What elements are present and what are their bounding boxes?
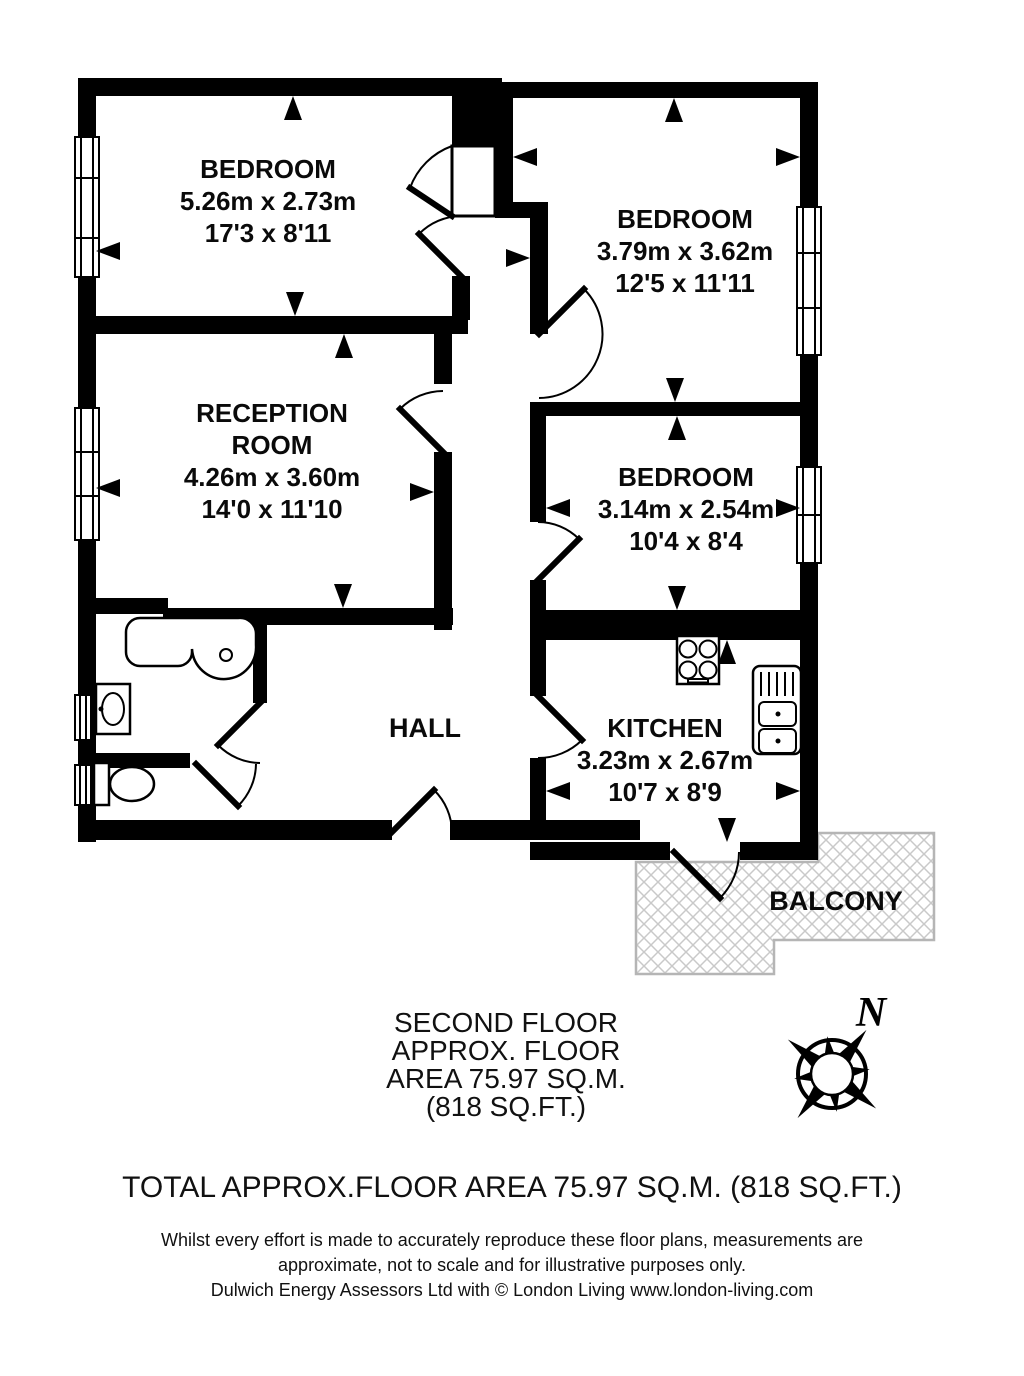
door-closet (410, 146, 452, 216)
door-bed2 (539, 289, 602, 398)
window-wc-left (75, 765, 91, 805)
bed1-imperial: 17'3 x 8'11 (205, 218, 332, 248)
reception-metric: 4.26m x 3.60m (184, 462, 360, 492)
door-wc (196, 764, 256, 806)
reception-imperial: 14'0 x 11'10 (201, 494, 342, 524)
door-reception (400, 391, 443, 452)
compass-center (811, 1053, 853, 1095)
window-bathroom-left (75, 695, 91, 740)
caption-line1: SECOND FLOOR (394, 1007, 618, 1038)
disclaimer-line3: Dulwich Energy Assessors Ltd with © Lond… (211, 1280, 814, 1300)
reception-name2: ROOM (232, 430, 313, 460)
bed2-metric: 3.79m x 3.62m (597, 236, 773, 266)
bed3-name: BEDROOM (618, 462, 754, 492)
caption-line2: APPROX. FLOOR (392, 1035, 621, 1066)
caption-line3: AREA 75.97 SQ.M. (386, 1063, 626, 1094)
kitchen-imperial: 10'7 x 8'9 (608, 777, 722, 807)
bed3-imperial: 10'4 x 8'4 (629, 526, 743, 556)
bed1-metric: 5.26m x 2.73m (180, 186, 356, 216)
disclaimer-line1: Whilst every effort is made to accuratel… (161, 1230, 863, 1250)
floor-caption: SECOND FLOOR APPROX. FLOOR AREA 75.97 SQ… (386, 1007, 626, 1122)
door-entrance (392, 790, 452, 832)
disclaimer: Whilst every effort is made to accuratel… (161, 1230, 863, 1300)
window-bed3-right (797, 467, 821, 563)
window-bed2-right (797, 207, 821, 355)
floorplan-page: BEDROOM 5.26m x 2.73m 17'3 x 8'11 BEDROO… (0, 0, 1024, 1376)
bathtub (126, 618, 256, 679)
basin (96, 684, 130, 734)
door-bathroom (218, 703, 260, 763)
door-bed1 (419, 216, 461, 276)
compass-rose: N (753, 990, 910, 1153)
kitchen-name: KITCHEN (607, 713, 723, 743)
door-kitchen (538, 696, 582, 758)
kitchen-sink (753, 666, 801, 754)
kitchen-metric: 3.23m x 2.67m (577, 745, 753, 775)
bed3-metric: 3.14m x 2.54m (598, 494, 774, 524)
total-area-line: TOTAL APPROX.FLOOR AREA 75.97 SQ.M. (818… (122, 1171, 902, 1204)
window-reception-left (75, 408, 99, 540)
toilet (94, 763, 154, 805)
balcony-label: BALCONY (769, 886, 903, 916)
disclaimer-line2: approximate, not to scale and for illust… (278, 1255, 746, 1275)
hall-label: HALL (389, 713, 461, 743)
door-bed3 (538, 522, 579, 580)
bed2-imperial: 12'5 x 11'11 (615, 268, 755, 298)
caption-line4: (818 SQ.FT.) (426, 1091, 586, 1122)
floor-plan-svg: BEDROOM 5.26m x 2.73m 17'3 x 8'11 BEDROO… (0, 0, 1024, 1376)
north-label: N (855, 990, 888, 1036)
hob (677, 636, 719, 684)
reception-name: RECEPTION (196, 398, 348, 428)
window-bed1-left (75, 137, 99, 277)
closet (452, 146, 495, 216)
bed2-name: BEDROOM (617, 204, 753, 234)
bed1-name: BEDROOM (200, 154, 336, 184)
